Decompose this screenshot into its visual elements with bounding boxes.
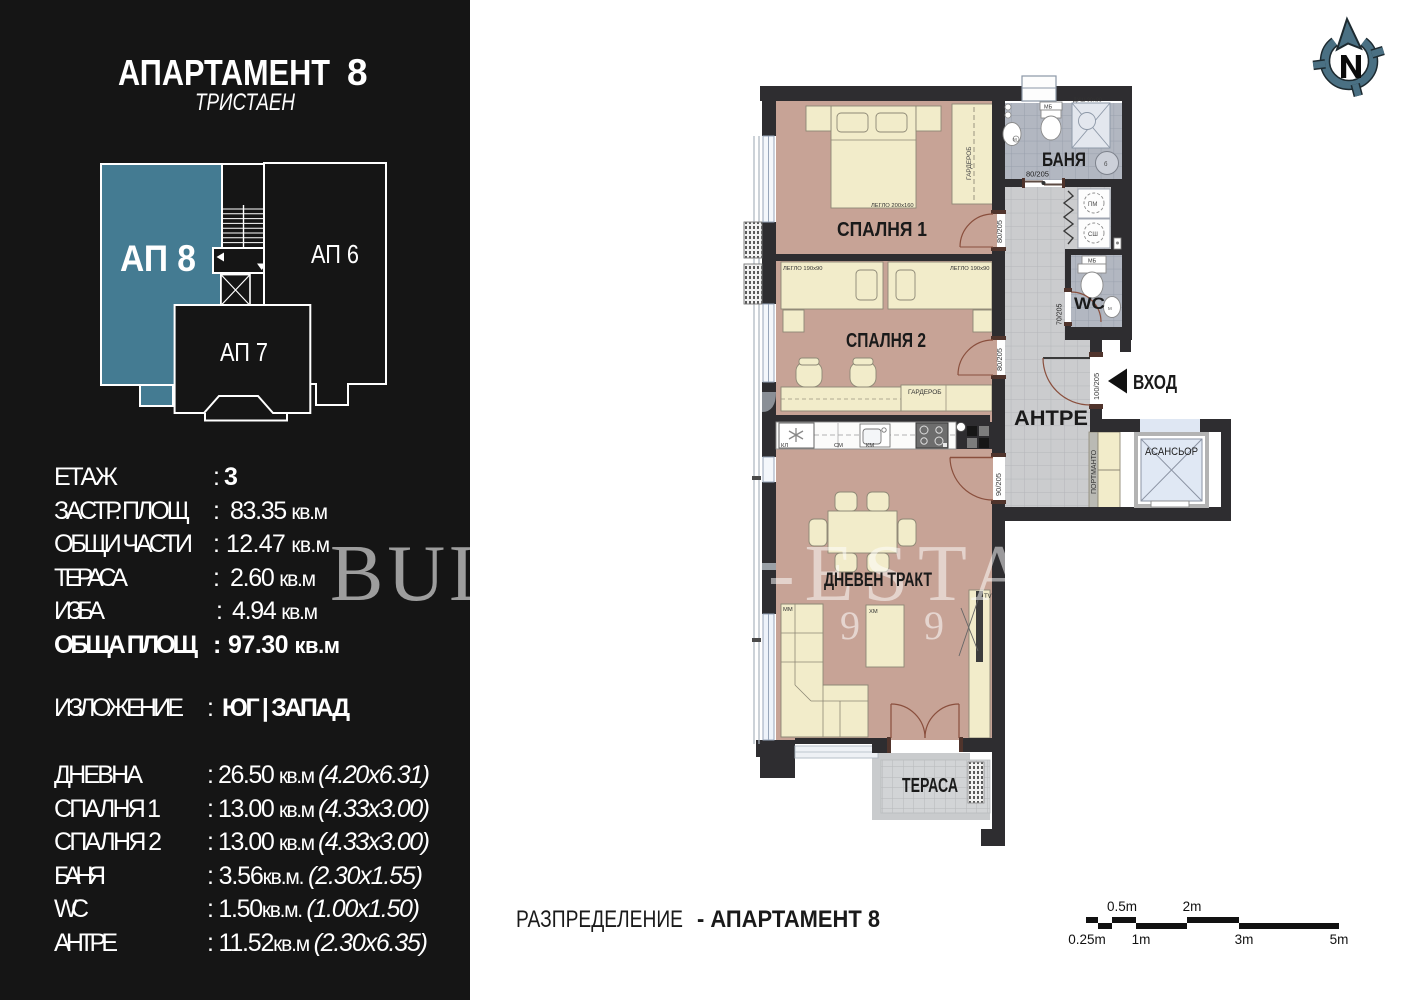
svg-text:СПАЛНЯ 1: СПАЛНЯ 1: [54, 795, 161, 823]
svg-text:: 3.56кв.м. (2.30х1.55): : 3.56кв.м. (2.30х1.55): [207, 862, 423, 890]
svg-text:б: б: [1104, 162, 1108, 168]
svg-text:ВХОД: ВХОД: [1133, 372, 1177, 394]
svg-text:КМ: КМ: [866, 443, 874, 449]
svg-text:80/205: 80/205: [995, 220, 1004, 243]
svg-text:ОБЩИ ЧАСТИ: ОБЩИ ЧАСТИ: [54, 530, 193, 558]
svg-text:12.47 кв.м: 12.47 кв.м: [226, 530, 330, 558]
svg-text:4.94 кв.м: 4.94 кв.м: [232, 597, 318, 625]
svg-text:М: М: [1013, 137, 1017, 142]
svg-text:ЛЕГЛО 190х90: ЛЕГЛО 190х90: [783, 266, 822, 272]
svg-text:: 11.52кв.м (2.30х6.35): : 11.52кв.м (2.30х6.35): [207, 929, 428, 957]
svg-text:100/205: 100/205: [1092, 373, 1101, 400]
svg-text:ЗАСТР. ПЛОЩ: ЗАСТР. ПЛОЩ: [54, 497, 190, 525]
svg-text:ДНЕВЕН ТРАКТ: ДНЕВЕН ТРАКТ: [824, 570, 932, 591]
svg-text:ТЕРАСА: ТЕРАСА: [54, 564, 128, 592]
svg-text:: 1.50кв.м. (1.00х1.50): : 1.50кв.м. (1.00х1.50): [207, 895, 420, 923]
svg-text:СШ: СШ: [1088, 232, 1098, 238]
svg-text:2.60 кв.м: 2.60 кв.м: [230, 564, 316, 592]
svg-text:АПАРТАМЕНТ: АПАРТАМЕНТ: [118, 52, 330, 93]
svg-text:ТРИСТАЕН: ТРИСТАЕН: [195, 89, 296, 116]
svg-text:АНТРЕ: АНТРЕ: [1014, 407, 1088, 430]
svg-text:9: 9: [924, 603, 944, 648]
svg-text:СМ: СМ: [834, 443, 843, 449]
svg-text:БАНЯ: БАНЯ: [54, 862, 106, 890]
svg-text:ДУШ 90х90: ДУШ 90х90: [1073, 98, 1102, 104]
svg-text:- АПАРТАМЕНТ 8: - АПАРТАМЕНТ 8: [697, 906, 880, 933]
svg-text:СПАЛНЯ 2: СПАЛНЯ 2: [54, 828, 162, 856]
svg-text::: :: [213, 631, 221, 659]
svg-text:3m: 3m: [1235, 932, 1254, 947]
svg-text:97.30 кв.м: 97.30 кв.м: [228, 631, 340, 659]
svg-text:ГАРДЕРОБ: ГАРДЕРОБ: [966, 146, 973, 180]
svg-text:ОБЩА ПЛОЩ: ОБЩА ПЛОЩ: [54, 631, 199, 659]
svg-text:: 26.50 кв.м (4.20х6.31): : 26.50 кв.м (4.20х6.31): [207, 761, 430, 789]
svg-text:ЛЕГЛО 200х160: ЛЕГЛО 200х160: [871, 203, 914, 209]
svg-text:83.35 кв.м: 83.35 кв.м: [230, 497, 328, 525]
svg-text:0.5m: 0.5m: [1107, 899, 1137, 914]
svg-text:: 13.00 кв.м (4.33х3.00): : 13.00 кв.м (4.33х3.00): [207, 795, 430, 823]
svg-text:90/205: 90/205: [994, 473, 1003, 496]
svg-text::: :: [213, 497, 220, 525]
svg-text:WC: WC: [1074, 294, 1105, 313]
svg-text:ДНЕВНА: ДНЕВНА: [54, 761, 143, 789]
svg-text:: 13.00 кв.м (4.33х3.00): : 13.00 кв.м (4.33х3.00): [207, 828, 430, 856]
svg-text:ЮГ | ЗАПАД: ЮГ | ЗАПАД: [222, 694, 350, 722]
svg-text:АП 6: АП 6: [311, 239, 359, 269]
svg-text:РАЗПРЕДЕЛЕНИЕ: РАЗПРЕДЕЛЕНИЕ: [516, 906, 683, 933]
svg-text:БАНЯ: БАНЯ: [1042, 150, 1086, 171]
svg-text:М: М: [1108, 306, 1112, 311]
svg-text:WC: WC: [54, 895, 89, 923]
svg-text:0.25m: 0.25m: [1068, 932, 1106, 947]
svg-text:ТЕРАСА: ТЕРАСА: [902, 775, 958, 797]
svg-text::: :: [213, 530, 220, 558]
svg-text:СПАЛНЯ 1: СПАЛНЯ 1: [837, 219, 927, 241]
svg-text:АП 7: АП 7: [220, 337, 268, 367]
svg-text::: :: [207, 694, 214, 722]
svg-text:ИЗБА: ИЗБА: [54, 597, 105, 625]
svg-text:BUL: BUL: [330, 530, 502, 618]
svg-text:5m: 5m: [1330, 932, 1349, 947]
svg-text:1m: 1m: [1132, 932, 1151, 947]
svg-text:2m: 2m: [1183, 899, 1202, 914]
svg-text:ЕТАЖ: ЕТАЖ: [54, 463, 118, 491]
svg-text:АСАНСЬОР: АСАНСЬОР: [1145, 446, 1198, 458]
svg-text:ГАРДЕРОБ: ГАРДЕРОБ: [908, 389, 942, 396]
svg-text:СПАЛНЯ 2: СПАЛНЯ 2: [846, 330, 926, 352]
svg-text:70/205: 70/205: [1057, 303, 1064, 325]
svg-text:3: 3: [224, 463, 238, 491]
svg-text:ПОРТМАНТО: ПОРТМАНТО: [1091, 449, 1098, 494]
svg-text:ПМ: ПМ: [1088, 202, 1097, 208]
svg-text::: :: [213, 463, 220, 491]
svg-text::: :: [216, 597, 223, 625]
svg-text:КЛ: КЛ: [781, 443, 788, 449]
svg-text:8: 8: [347, 52, 368, 93]
svg-text:9: 9: [840, 603, 860, 648]
svg-text:80/205: 80/205: [995, 348, 1004, 371]
svg-text:АНТРЕ: АНТРЕ: [54, 929, 118, 957]
svg-text::: :: [213, 564, 220, 592]
svg-text:АП 8: АП 8: [120, 238, 196, 279]
svg-text:ЛЕГЛО 190х90: ЛЕГЛО 190х90: [950, 266, 989, 272]
svg-text:ИЗЛОЖЕНИЕ: ИЗЛОЖЕНИЕ: [54, 694, 184, 722]
